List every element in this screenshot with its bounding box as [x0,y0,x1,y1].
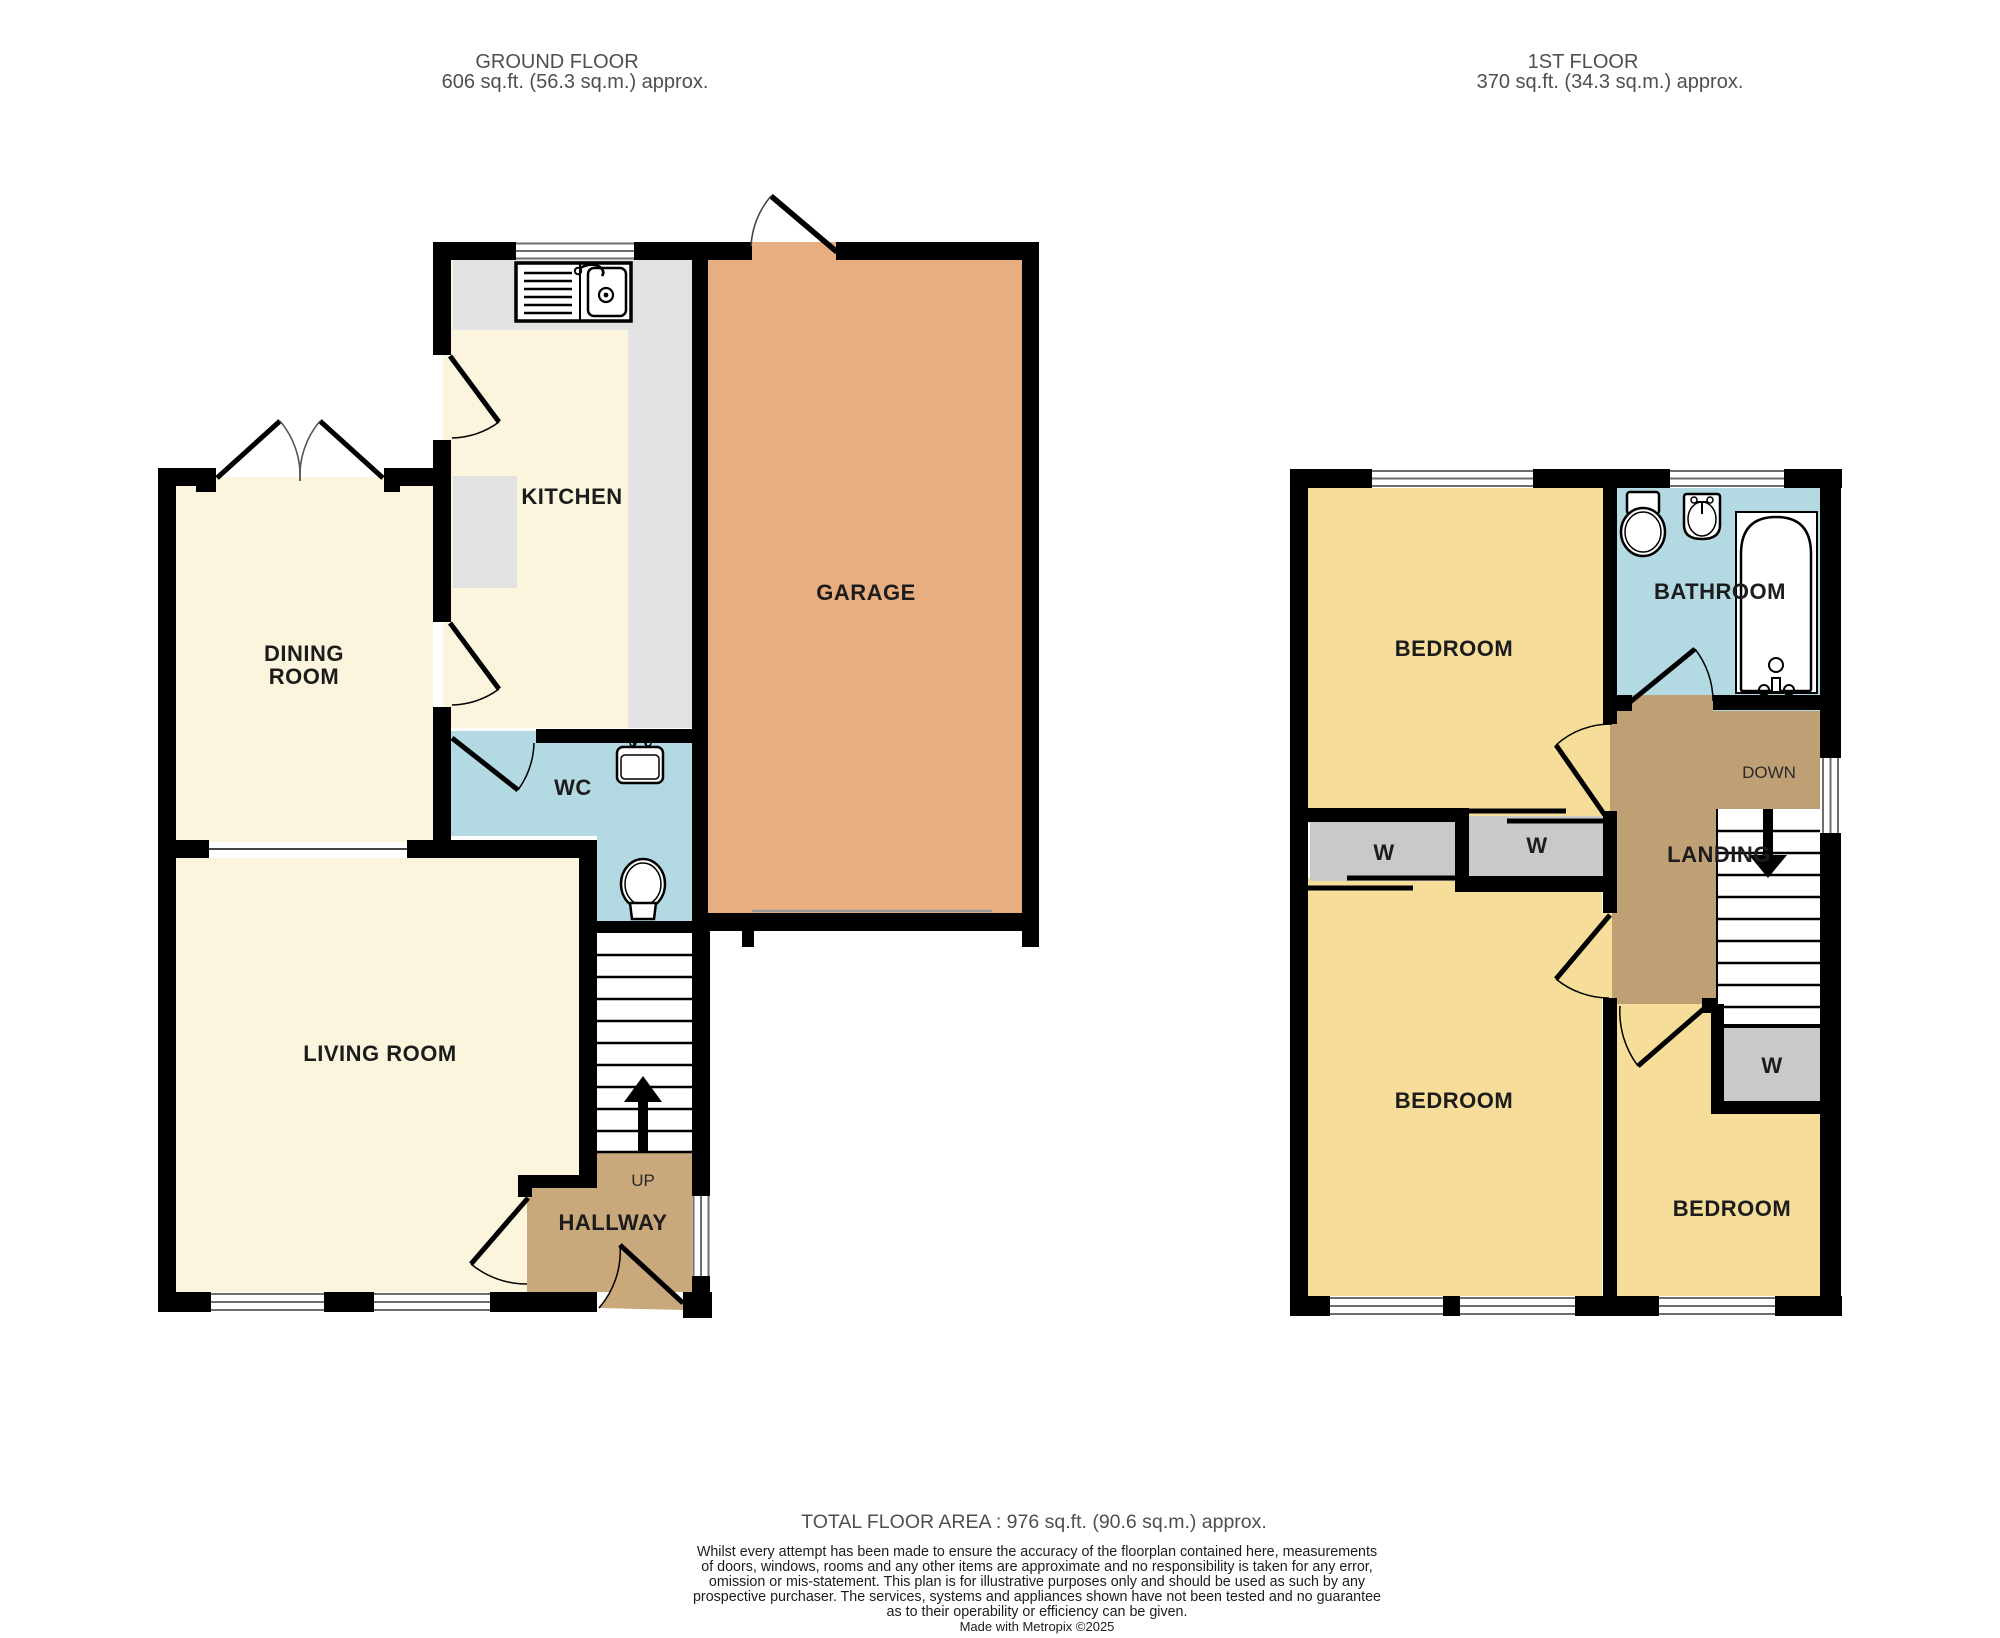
svg-text:WC: WC [554,775,592,800]
svg-text:BEDROOM: BEDROOM [1395,1088,1513,1113]
svg-text:Made with Metropix ©2025: Made with Metropix ©2025 [960,1619,1115,1634]
svg-text:BEDROOM: BEDROOM [1673,1196,1791,1221]
svg-text:DINING: DINING [264,641,344,666]
svg-text:W: W [1761,1053,1782,1078]
svg-text:W: W [1526,833,1547,858]
svg-text:Whilst every attempt has been: Whilst every attempt has been made to en… [697,1544,1377,1560]
svg-text:1ST FLOOR: 1ST FLOOR [1528,51,1639,73]
svg-text:606 sq.ft. (56.3 sq.m.) approx: 606 sq.ft. (56.3 sq.m.) approx. [442,71,709,93]
svg-text:HALLWAY: HALLWAY [558,1210,667,1235]
svg-text:as to their operability or eff: as to their operability or efficiency ca… [887,1604,1188,1620]
svg-text:omission or mis-statement. Thi: omission or mis-statement. This plan is … [709,1574,1366,1590]
svg-text:of doors, windows, rooms and a: of doors, windows, rooms and any other i… [701,1559,1373,1575]
svg-text:GROUND FLOOR: GROUND FLOOR [475,51,638,73]
svg-text:prospective purchaser. The ser: prospective purchaser. The services, sys… [693,1589,1381,1605]
svg-text:LIVING ROOM: LIVING ROOM [303,1041,456,1066]
svg-text:BATHROOM: BATHROOM [1654,579,1786,604]
svg-text:GARAGE: GARAGE [816,580,916,605]
svg-text:370 sq.ft. (34.3 sq.m.) approx: 370 sq.ft. (34.3 sq.m.) approx. [1477,71,1744,93]
svg-text:DOWN: DOWN [1742,763,1796,782]
svg-text:TOTAL FLOOR AREA : 976 sq.ft.: TOTAL FLOOR AREA : 976 sq.ft. (90.6 sq.m… [801,1511,1267,1533]
svg-text:W: W [1373,840,1394,865]
svg-text:KITCHEN: KITCHEN [521,484,622,509]
svg-text:BEDROOM: BEDROOM [1395,636,1513,661]
svg-text:ROOM: ROOM [269,664,339,689]
svg-text:LANDING: LANDING [1667,842,1771,867]
svg-text:UP: UP [631,1171,655,1190]
